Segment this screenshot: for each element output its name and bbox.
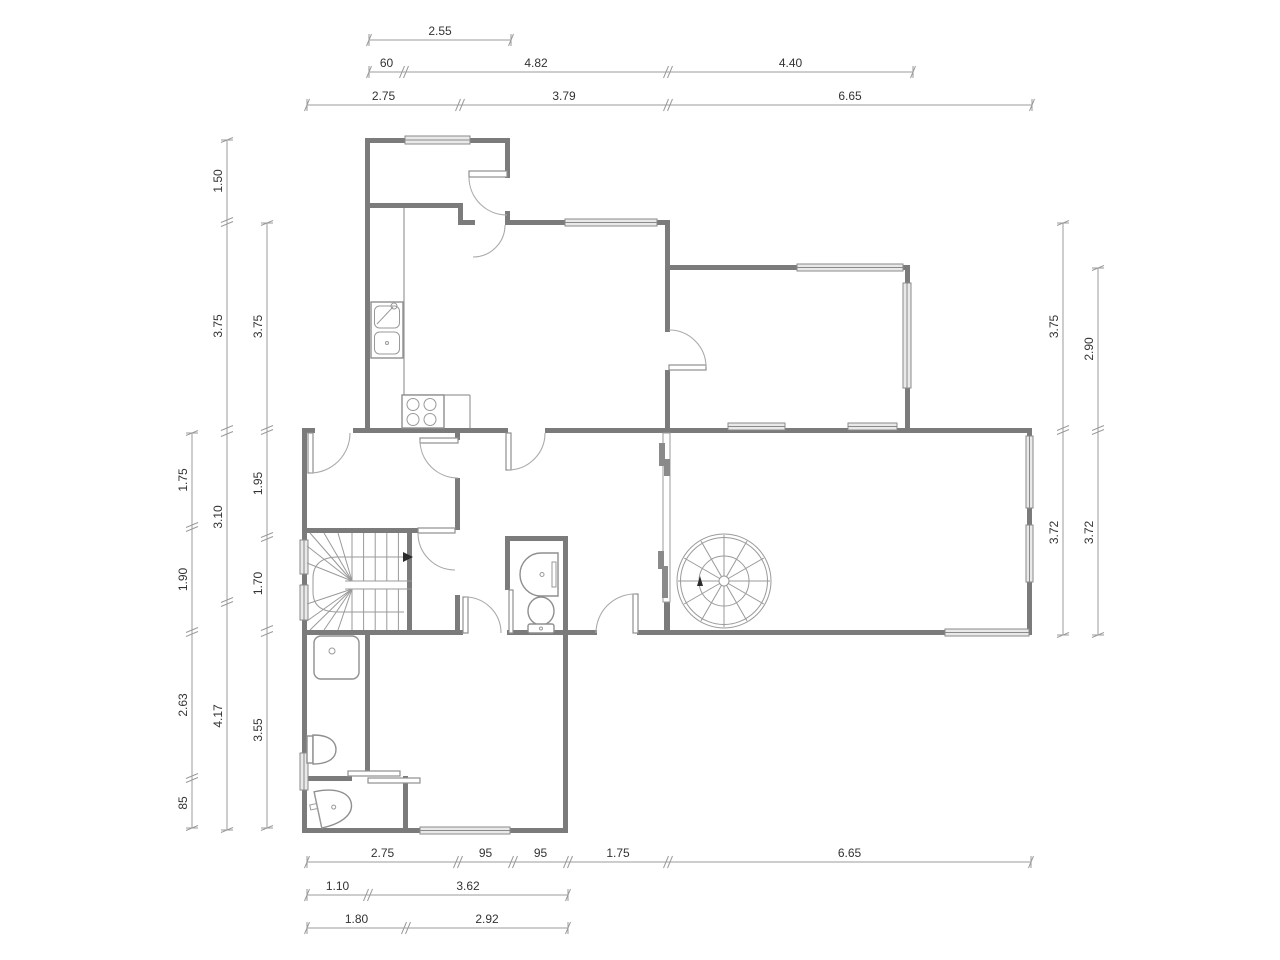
door-kitchen <box>473 225 505 257</box>
dimension-label: 1.50 <box>211 169 225 193</box>
spiral-staircase <box>677 534 771 628</box>
dimension-label: 6.65 <box>838 846 862 860</box>
dimension-label: 85 <box>176 796 190 810</box>
window <box>945 629 1029 636</box>
window <box>903 283 911 388</box>
dimension-label: 1.10 <box>326 879 350 893</box>
dimension-label: 3.75 <box>211 314 225 338</box>
window <box>848 423 897 430</box>
door-hall-south <box>596 594 638 633</box>
dimension-label: 3.55 <box>251 718 265 742</box>
floor-plan-drawing: 2.55604.824.402.753.796.651.503.753.104.… <box>0 0 1280 960</box>
kitchen-sink <box>371 302 403 358</box>
stove <box>402 395 444 428</box>
dimension-label: 6.65 <box>838 89 862 103</box>
sliding-door-panel <box>662 566 668 598</box>
dimension-label: 1.80 <box>345 912 369 926</box>
dimension-label: 95 <box>534 846 548 860</box>
door-bottom-room <box>463 597 501 633</box>
dimension-label: 2.92 <box>475 912 499 926</box>
dimension-label: 4.82 <box>524 56 548 70</box>
kitchen <box>371 208 470 428</box>
dimension-label: 3.72 <box>1082 520 1096 544</box>
dimension-label: 1.75 <box>176 468 190 492</box>
toilet <box>528 597 554 633</box>
toilet <box>307 735 336 764</box>
window <box>300 585 308 620</box>
dimension-label: 2.55 <box>428 24 452 38</box>
dimension-label: 1.75 <box>606 846 630 860</box>
window <box>405 136 470 144</box>
dimension-label: 1.95 <box>251 471 265 495</box>
window <box>728 423 785 430</box>
staircase <box>307 533 413 630</box>
dimension-label: 3.75 <box>1047 314 1061 338</box>
door-entry <box>469 171 507 215</box>
sliding-door-washroom <box>348 771 420 783</box>
dimension-label: 2.75 <box>372 89 396 103</box>
dimension-label: 2.75 <box>371 846 395 860</box>
dimension-label: 3.79 <box>552 89 576 103</box>
washbasin <box>307 785 355 830</box>
dimension-label: 4.17 <box>211 704 225 728</box>
door-top-right-room <box>669 330 706 370</box>
door-left-room <box>308 433 350 473</box>
window <box>797 264 903 271</box>
dimension-label: 4.40 <box>779 56 803 70</box>
window <box>300 540 308 574</box>
shower-room <box>307 636 359 829</box>
wc-room <box>520 553 558 633</box>
dimension-label: 3.10 <box>211 505 225 529</box>
dimension-label: 1.70 <box>251 571 265 595</box>
sliding-door-panel <box>664 459 670 476</box>
window <box>565 219 657 226</box>
door-hall <box>506 433 545 470</box>
window <box>420 827 510 834</box>
dimension-label: 3.62 <box>456 879 480 893</box>
washbasin <box>520 553 558 596</box>
dimension-label: 3.75 <box>251 314 265 338</box>
door-stair-passage <box>418 528 455 570</box>
dimension-label: 2.90 <box>1082 337 1096 361</box>
dimension-label: 3.72 <box>1047 520 1061 544</box>
floor-plan-page: 2.55604.824.402.753.796.651.503.753.104.… <box>0 0 1280 960</box>
door-wc <box>509 590 513 633</box>
dimension-label: 2.63 <box>176 693 190 717</box>
dimension-label: 60 <box>380 56 394 70</box>
stair-walk-line <box>313 557 404 612</box>
glazed-partition <box>658 433 670 602</box>
window <box>1026 525 1033 582</box>
dimension-label: 1.90 <box>176 567 190 591</box>
shower <box>314 636 359 679</box>
window <box>1026 436 1033 508</box>
dimension-label: 95 <box>479 846 493 860</box>
door-hall-left-room <box>420 438 458 478</box>
